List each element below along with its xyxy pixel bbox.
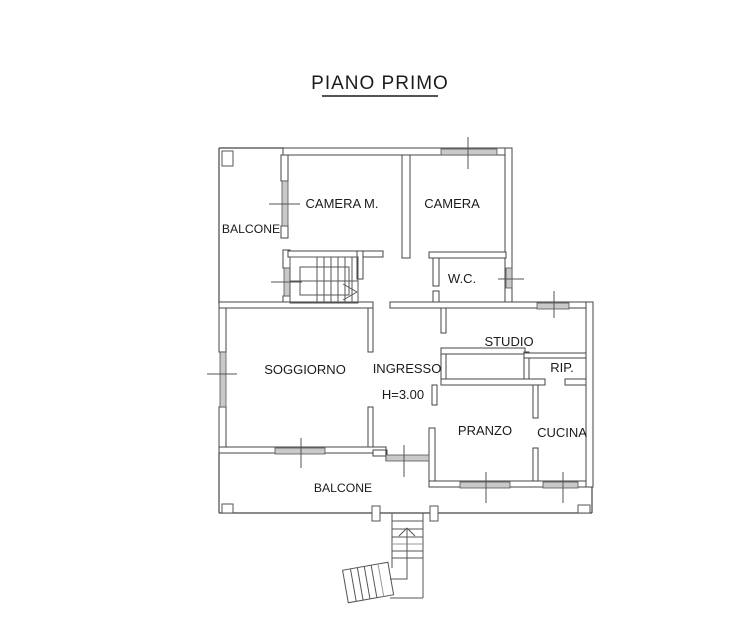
window-wc <box>506 268 512 288</box>
room-label-ingresso: INGRESSO <box>373 361 442 376</box>
plan-title: PIANO PRIMO <box>311 73 449 94</box>
room-label-pranzo: PRANZO <box>458 423 512 438</box>
window-studio <box>537 303 569 309</box>
floor-plan-drawing: PIANO PRIMO <box>0 0 744 635</box>
window-camera <box>441 149 497 155</box>
window-soggiorno-bottom <box>275 448 325 454</box>
balcony-pillar <box>372 506 380 521</box>
exterior-staircase <box>343 513 423 603</box>
room-label-balcone-bottom: BALCONE <box>314 481 372 495</box>
balcony-pillar <box>222 151 233 166</box>
interior-staircase <box>290 257 358 303</box>
room-label-height: H=3.00 <box>382 387 424 402</box>
floor-plan-page: PIANO PRIMO <box>0 0 744 635</box>
window-soggiorno-left <box>220 352 226 407</box>
balcony-pillar <box>578 505 590 513</box>
room-label-soggiorno: SOGGIORNO <box>264 362 346 377</box>
balcony-pillar <box>222 504 233 513</box>
room-label-studio: STUDIO <box>484 334 533 349</box>
room-label-camera-m: CAMERA M. <box>306 196 379 211</box>
room-label-camera: CAMERA <box>424 196 480 211</box>
window-cucina <box>543 482 578 488</box>
stair-direction-line <box>390 528 407 579</box>
exterior-stair-lower-flight <box>343 562 394 602</box>
room-label-wc: W.C. <box>448 271 476 286</box>
balcony-pillar <box>430 506 438 521</box>
window-ingresso <box>386 455 429 461</box>
room-label-balcone-top: BALCONE <box>222 222 280 236</box>
window-pranzo <box>460 482 510 488</box>
room-label-rip: RIP. <box>550 360 574 375</box>
room-label-cucina: CUCINA <box>537 425 587 440</box>
